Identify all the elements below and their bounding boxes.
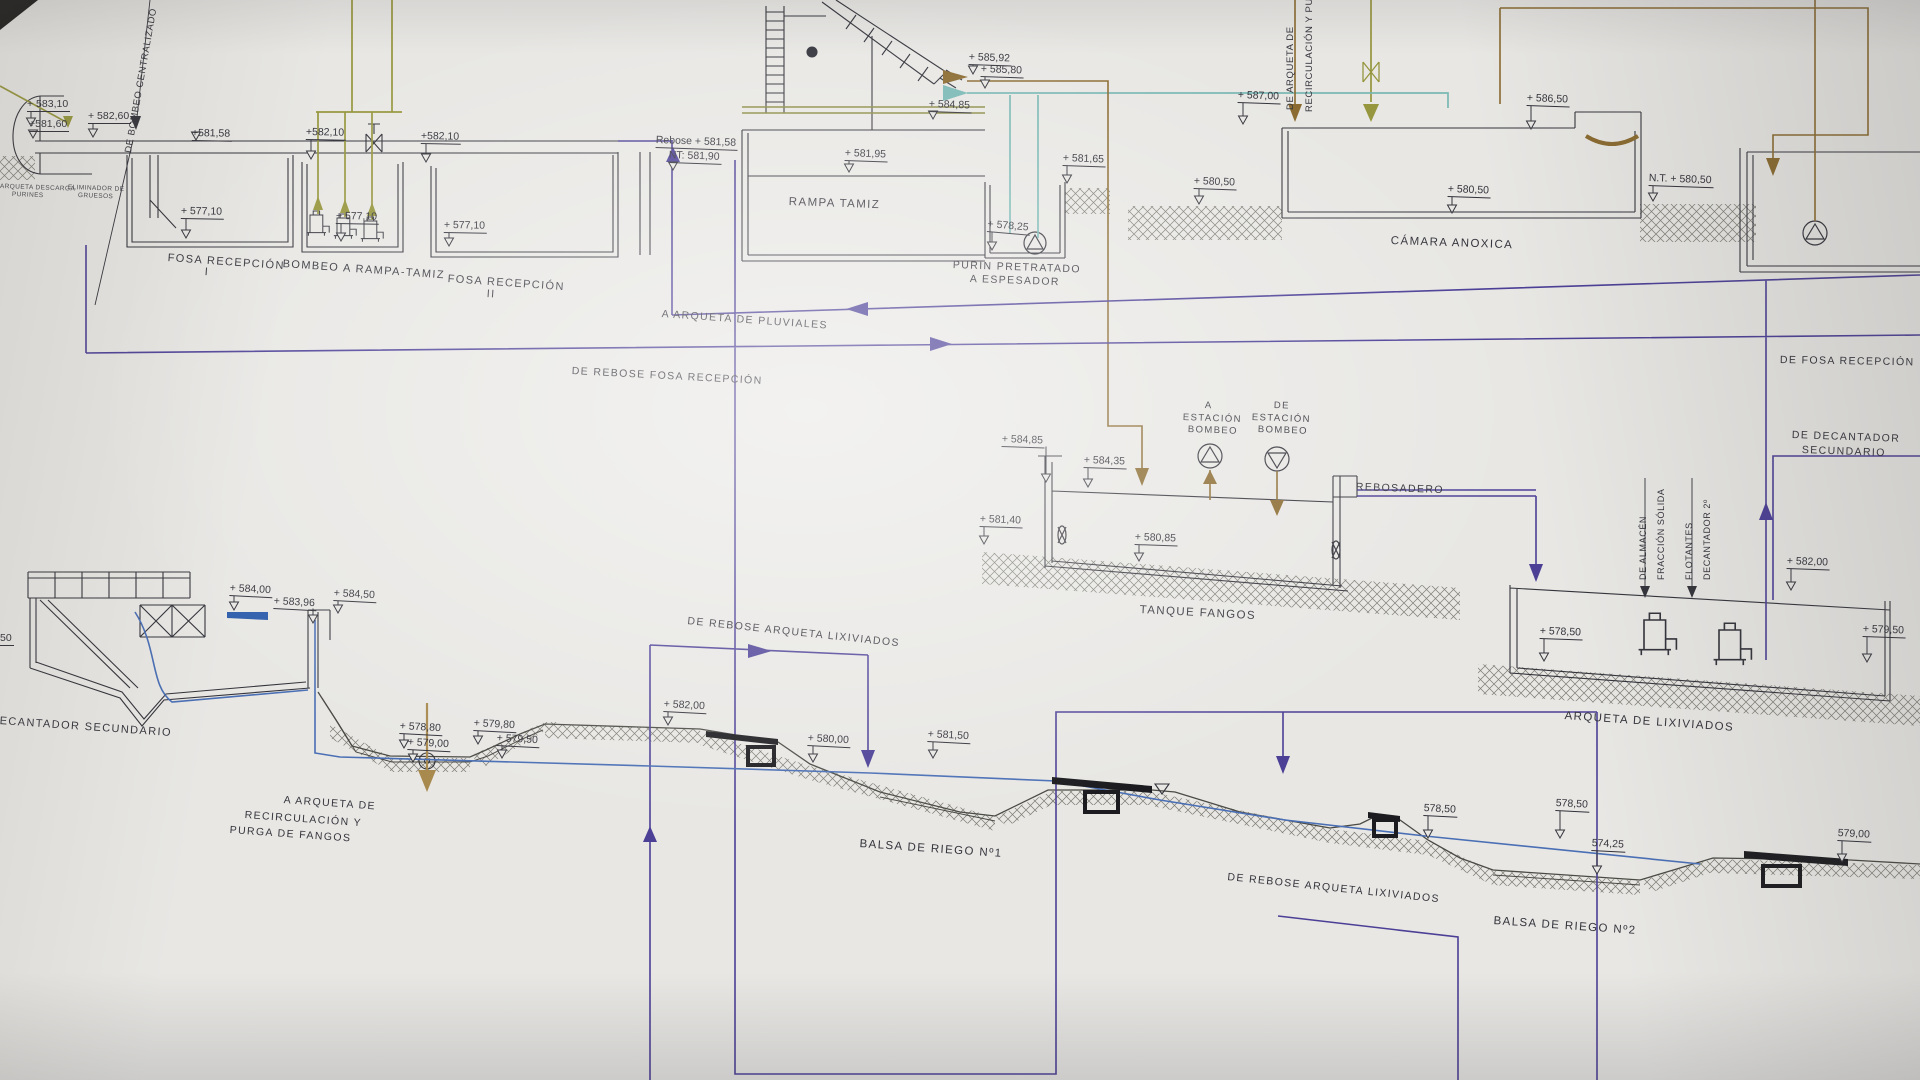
line-de-fosa-recepcion: DE FOSA RECEPCIÓN: [1780, 355, 1915, 368]
weir-structures: [706, 731, 1848, 886]
line-de-arqueta-recirc-2: RECIRCULACIÓN Y PUR: [1305, 0, 1315, 112]
line-de-almacen-1: DE ALMACÉN: [1639, 516, 1648, 580]
elev-584-35: + 584,35: [1084, 455, 1128, 470]
line-de-arqueta-recirc-1: DE ARQUETA DE: [1286, 26, 1296, 110]
elev-587-00: + 587,00: [1238, 90, 1282, 105]
tanks-linework: [13, 0, 1920, 794]
olive-pump-lines: [0, 0, 1379, 220]
elev-581-50: + 581,50: [927, 729, 971, 744]
flow-a-estacion-3: BOMBEO: [1188, 425, 1238, 437]
tank-fosa-recepcion-2-num: II: [486, 289, 496, 301]
elev-580-50-b: + 580,50: [1448, 184, 1492, 199]
line-de-almacen-2: FRACCIÓN SÓLIDA: [1657, 488, 1666, 580]
elev-577-10-a: + 577,10: [181, 206, 224, 220]
flow-de-estacion-1: DE: [1274, 401, 1290, 412]
elev-581-60: +581,60: [29, 119, 69, 132]
elev-581-65: + 581,65: [1063, 153, 1107, 168]
elev-579-00-b: 579,00: [1837, 828, 1872, 843]
elev-579-80: + 579,80: [473, 718, 517, 733]
flow-arrows: [63, 70, 1780, 842]
elev-583-10: + 583,10: [27, 99, 70, 112]
elev-584-85-b: + 584,85: [1002, 434, 1046, 449]
elev-584-00: + 584,00: [229, 583, 273, 598]
water-line: [135, 612, 1700, 864]
elev-580-50-a: + 580,50: [1194, 176, 1238, 191]
elev-580-85: + 580,85: [1135, 532, 1179, 547]
elev-partial-50: 50: [0, 633, 14, 646]
elevation-markers: [27, 65, 1872, 875]
elev-581-95: + 581,95: [845, 148, 889, 163]
elev-578-50-r: + 578,50: [1540, 626, 1584, 641]
elev-577-10-b: + 577,10: [336, 211, 379, 225]
elev-581-58: +581,58: [192, 128, 232, 142]
elev-582-60: + 582,60: [88, 111, 131, 124]
elev-584-50: + 584,50: [333, 588, 377, 603]
elev-582-10-a: +582,10: [306, 127, 346, 141]
elev-nt-580-50: N.T. + 580,50: [1649, 173, 1714, 188]
line-flotantes-2: DECANTADOR 2º: [1703, 499, 1712, 580]
elev-585-80: + 585,80: [981, 64, 1025, 79]
elev-586-50: + 586,50: [1527, 93, 1571, 108]
elev-574-25: 574,25: [1591, 838, 1626, 853]
diagram-canvas: [0, 0, 1920, 1080]
elev-581-40: + 581,40: [980, 514, 1024, 529]
blueprint-photo: + 583,10+581,60+ 582,60+581,58+ 577,10+5…: [0, 0, 1920, 1080]
elev-582-10-b: +582,10: [421, 131, 461, 145]
elev-577-10-c: + 577,10: [444, 220, 487, 234]
flow-a-estacion-1: A: [1205, 401, 1213, 411]
brown-lines: [967, 0, 1868, 500]
elev-579-50-r: + 579,50: [1863, 624, 1907, 639]
eliminador-gruesos-2: GRUESOS: [78, 193, 114, 201]
elev-nt-581-90: NT: 581,90: [669, 150, 722, 165]
elev-578-80: + 578,80: [399, 721, 443, 736]
line-flotantes-1: FLOTANTES: [1685, 522, 1694, 580]
clarifier-water-wedge: [227, 612, 268, 620]
elev-582-00-r: + 582,00: [1787, 556, 1831, 571]
elev-582-00-m: + 582,00: [663, 699, 707, 714]
elev-578-50-b: 578,50: [1555, 798, 1590, 813]
elev-579-50-m: + 579,50: [496, 733, 540, 748]
elev-578-50-a: 578,50: [1423, 803, 1458, 818]
elev-579-00: + 579,00: [407, 737, 451, 752]
flow-de-estacion-3: BOMBEO: [1258, 425, 1308, 437]
tank-arqueta-descarga-2: PURINES: [12, 192, 44, 200]
screen-conveyor: [766, 0, 962, 113]
elev-583-96: + 583,96: [273, 596, 317, 611]
tank-fosa-recepcion-1-num: I: [204, 267, 209, 279]
elev-584-85-a: + 584,85: [929, 99, 973, 114]
elev-580-00: + 580,00: [807, 733, 851, 748]
photo-corner: [0, 0, 38, 30]
